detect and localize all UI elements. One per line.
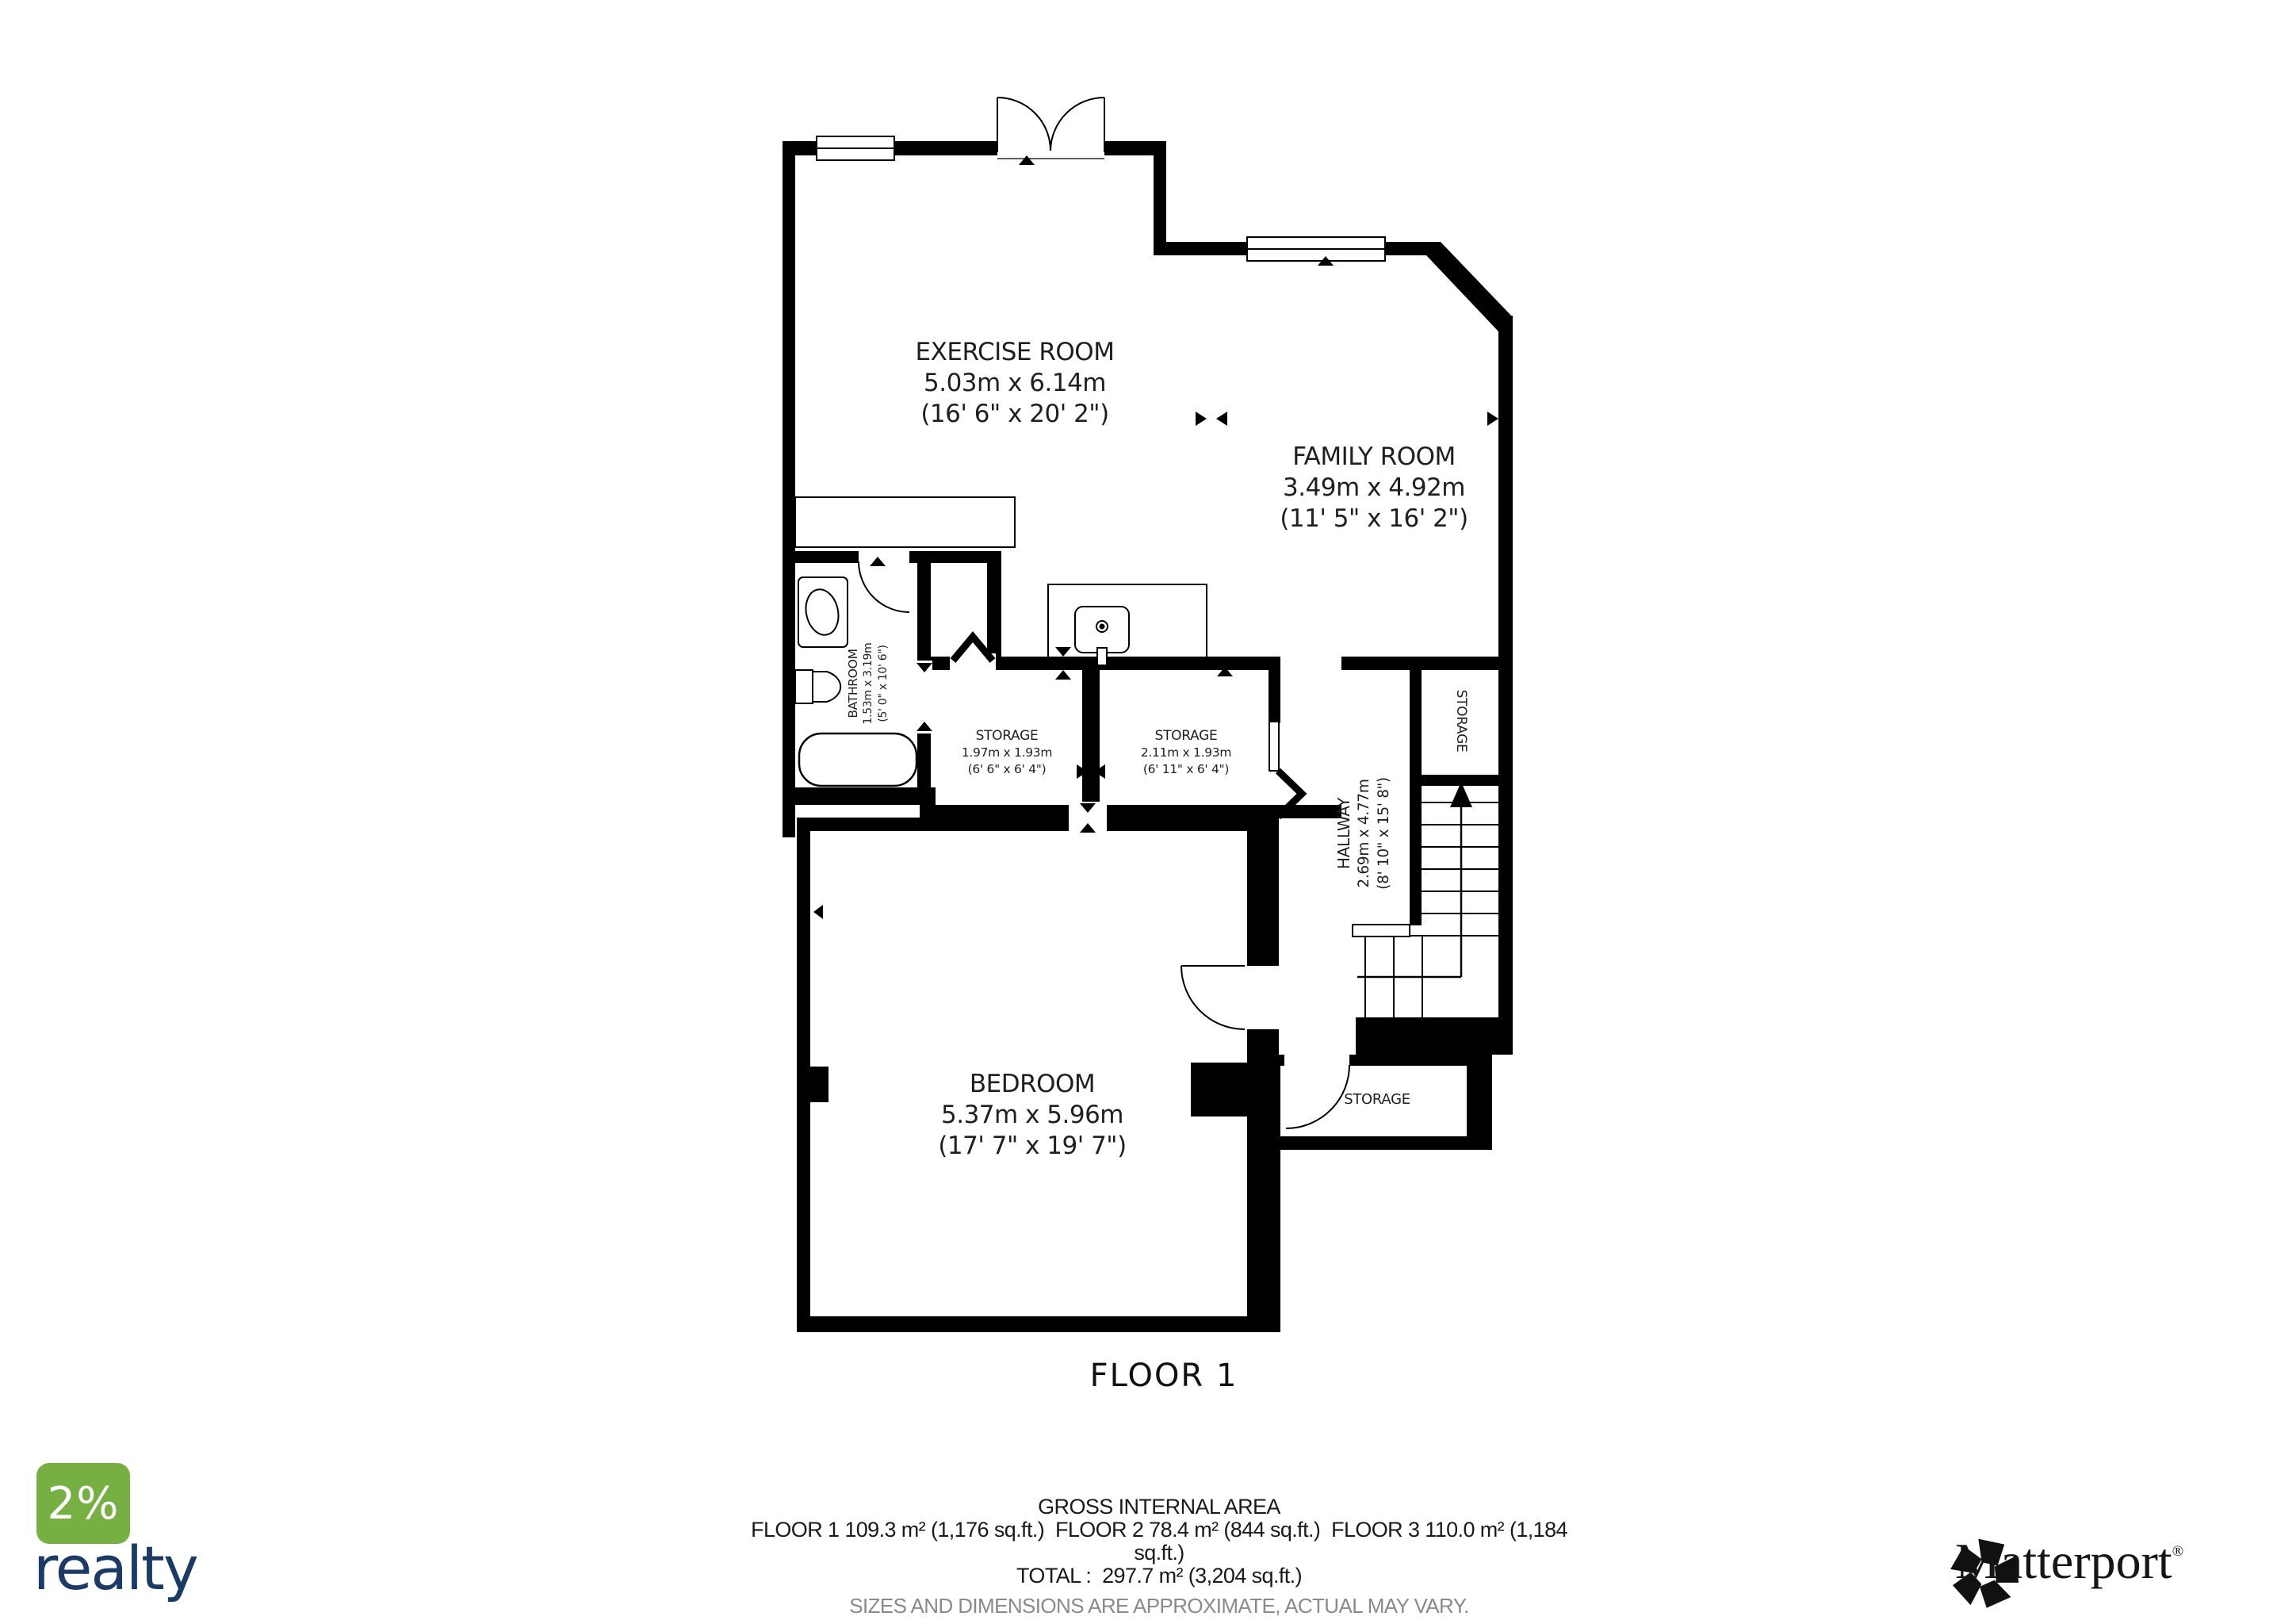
window-exercise [817,136,894,160]
room-name: STORAGE [1108,728,1264,745]
room-label-storage-bottom: STORAGE [1298,1091,1456,1108]
room-label-bedroom: BEDROOM 5.37m x 5.96m (17' 7" x 19' 7") [858,1069,1207,1162]
room-dim-metric: 5.37m x 5.96m [858,1100,1207,1131]
room-dim-imperial: (11' 5" x 16' 2") [1200,504,1548,534]
room-name: FAMILY ROOM [1200,442,1548,473]
toilet-icon [795,670,840,703]
room-dim-imperial: (6' 6" x 6' 4") [929,761,1085,778]
matterport-pinwheel-icon [1944,1532,2026,1614]
room-dim-imperial: (8' 10" x 15' 8") [1374,734,1394,933]
realty-wordmark: realty [33,1533,243,1603]
room-label-bathroom: BATHROOM 1.53m x 3.19m (5' 0" x 10' 6") [846,592,901,775]
floor-title: FLOOR 1 [1045,1358,1283,1394]
room-name: STORAGE [1298,1091,1456,1108]
room-name: EXERCISE ROOM [840,337,1189,368]
room-name: STORAGE [929,728,1085,745]
room-dim-metric: 2.11m x 1.93m [1108,745,1264,761]
realty-logo: 2% realty [36,1463,243,1603]
room-dim-imperial: (17' 7" x 19' 7") [858,1131,1207,1162]
room-dim-metric: 1.53m x 3.19m [861,592,876,775]
matterport-logo: Matterport® [1944,1532,2183,1591]
room-dim-metric: 1.97m x 1.93m [929,745,1085,761]
room-dim-imperial: (6' 11" x 6' 4") [1108,761,1264,778]
room-label-hallway: HALLWAY 2.69m x 4.77m (8' 10" x 15' 8") [1334,734,1396,933]
realty-logo-green-square: 2% [36,1463,130,1544]
footer-area-summary: GROSS INTERNAL AREA FLOOR 1 109.3 m² (1,… [723,1496,1595,1618]
utility-sink-icon [1048,584,1207,665]
room-dim-metric: 5.03m x 6.14m [840,368,1189,399]
room-name: BATHROOM [846,592,861,775]
floor-areas-line1: FLOOR 1 109.3 m² (1,176 sq.ft.) FLOOR 2 … [723,1519,1595,1542]
realty-percent-text: 2% [48,1478,120,1530]
room-name: HALLWAY [1334,734,1354,933]
bathroom-sink-icon [798,577,848,647]
room-name: STORAGE [1452,661,1469,780]
room-label-storage1: STORAGE 1.97m x 1.93m (6' 6" x 6' 4") [929,728,1085,778]
room-dim-metric: 3.49m x 4.92m [1200,473,1548,504]
exercise-counter [795,497,1015,547]
room-name: BEDROOM [858,1069,1207,1100]
room-label-storage2: STORAGE 2.11m x 1.93m (6' 11" x 6' 4") [1108,728,1264,778]
total-area: TOTAL : 297.7 m² (3,204 sq.ft.) [723,1565,1595,1588]
floorplan-page: EXERCISE ROOM 5.03m x 6.14m (16' 6" x 20… [0,0,2296,1624]
room-dim-metric: 2.69m x 4.77m [1354,734,1374,933]
floor-areas-line2: sq.ft.) [723,1542,1595,1565]
registered-mark: ® [2172,1543,2183,1560]
room-dim-imperial: (16' 6" x 20' 2") [840,399,1189,430]
gross-internal-area-heading: GROSS INTERNAL AREA [723,1496,1595,1519]
disclaimer-text: SIZES AND DIMENSIONS ARE APPROXIMATE, AC… [723,1595,1595,1618]
room-label-storage-right: STORAGE [1450,661,1469,780]
door-bedroom [1181,966,1245,1029]
room-label-family: FAMILY ROOM 3.49m x 4.92m (11' 5" x 16' … [1200,442,1548,534]
open-door-storage2-icon [1269,722,1302,817]
window-family [1247,237,1385,261]
room-label-exercise: EXERCISE ROOM 5.03m x 6.14m (16' 6" x 20… [840,337,1189,430]
room-dim-imperial: (5' 0" x 10' 6") [876,592,891,775]
